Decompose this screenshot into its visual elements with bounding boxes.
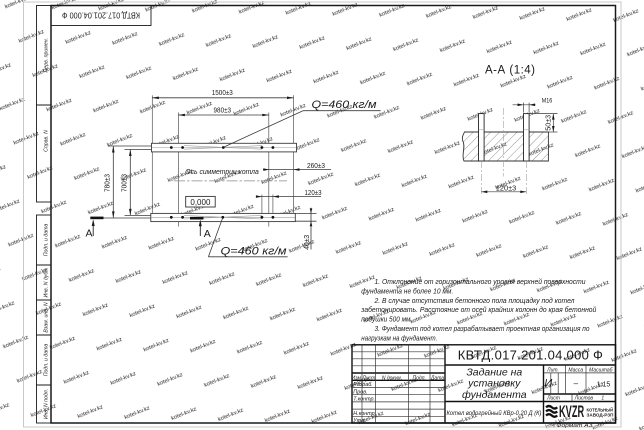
svg-text:Пров.: Пров. (353, 389, 367, 395)
svg-text:40±3: 40±3 (302, 235, 311, 250)
svg-text:Подп. и дата: Подп. и дата (44, 344, 50, 377)
svg-text:Листов: Листов (574, 395, 594, 401)
svg-text:1:15: 1:15 (597, 382, 611, 389)
svg-text:KVZR: KVZR (559, 402, 584, 421)
svg-text:Формат А3: Формат А3 (556, 423, 592, 429)
svg-text:Инв. N дубл.: Инв. N дубл. (44, 267, 50, 297)
svg-text:КОТЕЛЬНЫЙ: КОТЕЛЬНЫЙ (587, 405, 614, 412)
svg-text:1500±3: 1500±3 (212, 88, 233, 97)
svg-text:Взам. инв. N: Взам. инв. N (44, 302, 50, 332)
svg-text:N докум.: N докум. (382, 375, 402, 381)
svg-text:Утв.: Утв. (352, 418, 365, 424)
svg-text:Котел водогрейный КВр-0,20 Д (: Котел водогрейный КВр-0,20 Д (К) (447, 410, 542, 417)
svg-text:Справ. N: Справ. N (44, 130, 50, 152)
svg-text:Н.контр.: Н.контр. (353, 411, 376, 417)
svg-text:фундамента: фундамента (462, 389, 527, 401)
svg-text:подушки 500 мм.: подушки 500 мм. (361, 315, 412, 324)
svg-text:фундамента не более 10 мм.: фундамента не более 10 мм. (361, 286, 453, 295)
svg-text:Подп.: Подп. (413, 375, 426, 381)
svg-text:Перв. примен.: Перв. примен. (44, 38, 50, 72)
svg-text:Подп. и дата: Подп. и дата (44, 224, 50, 257)
svg-text:КВТД.017.201.04.000 Ф: КВТД.017.201.04.000 Ф (62, 11, 140, 21)
svg-text:А: А (85, 228, 92, 240)
svg-text:980±3: 980±3 (214, 105, 232, 114)
svg-text:забетонировать. Расстояние от: забетонировать. Расстояние от осей крайн… (360, 305, 596, 314)
svg-text:Лист: Лист (361, 375, 375, 381)
svg-text:Изм.: Изм. (352, 375, 363, 381)
svg-text:Ось симметрии котла: Ось симметрии котла (185, 167, 258, 176)
svg-text:М16: М16 (542, 97, 553, 104)
svg-text:установку: установку (467, 377, 521, 389)
svg-text:ЗАВОД-РЗП: ЗАВОД-РЗП (587, 413, 614, 418)
svg-text:Дата: Дата (430, 375, 444, 381)
svg-text:А: А (204, 228, 211, 240)
svg-text:120±3: 120±3 (496, 183, 517, 192)
svg-text:Масса: Масса (568, 368, 583, 374)
svg-text:А-А (1:4): А-А (1:4) (485, 64, 536, 76)
svg-text:Масштаб: Масштаб (589, 368, 613, 374)
svg-text:Разраб.: Разраб. (353, 382, 373, 388)
svg-text:Q=460 кг/м: Q=460 кг/м (221, 245, 288, 257)
svg-text:260±3: 260±3 (307, 161, 325, 170)
svg-text:–: – (574, 379, 579, 388)
svg-text:3. Фундамент под котел разраба: 3. Фундамент под котел разрабатывает про… (375, 324, 590, 333)
svg-text:1. Отклонение от горизонтально: 1. Отклонение от горизонтального уровня … (375, 277, 586, 286)
svg-text:Лист: Лист (546, 395, 560, 401)
svg-text:нагрузкам на фундамент.: нагрузкам на фундамент. (361, 333, 437, 342)
svg-text:50±3: 50±3 (544, 115, 553, 131)
svg-text:И: И (544, 378, 552, 390)
svg-text:120±3: 120±3 (305, 188, 322, 197)
svg-text:700±3: 700±3 (120, 174, 129, 192)
svg-text:Т.контр.: Т.контр. (353, 397, 375, 403)
svg-text:Инв. N подл.: Инв. N подл. (44, 389, 50, 419)
svg-text:2. В случае отсутствия бетонно: 2. В случае отсутствия бетонного пола пл… (374, 296, 575, 305)
svg-text:Лит.: Лит. (546, 368, 559, 374)
svg-text:КВТД.017.201.04.000 Ф: КВТД.017.201.04.000 Ф (458, 347, 603, 362)
svg-text:Q=460 кг/м: Q=460 кг/м (312, 99, 378, 111)
svg-text:780±3: 780±3 (103, 174, 112, 192)
svg-text:0,000: 0,000 (190, 198, 211, 207)
svg-text:1: 1 (601, 395, 604, 401)
